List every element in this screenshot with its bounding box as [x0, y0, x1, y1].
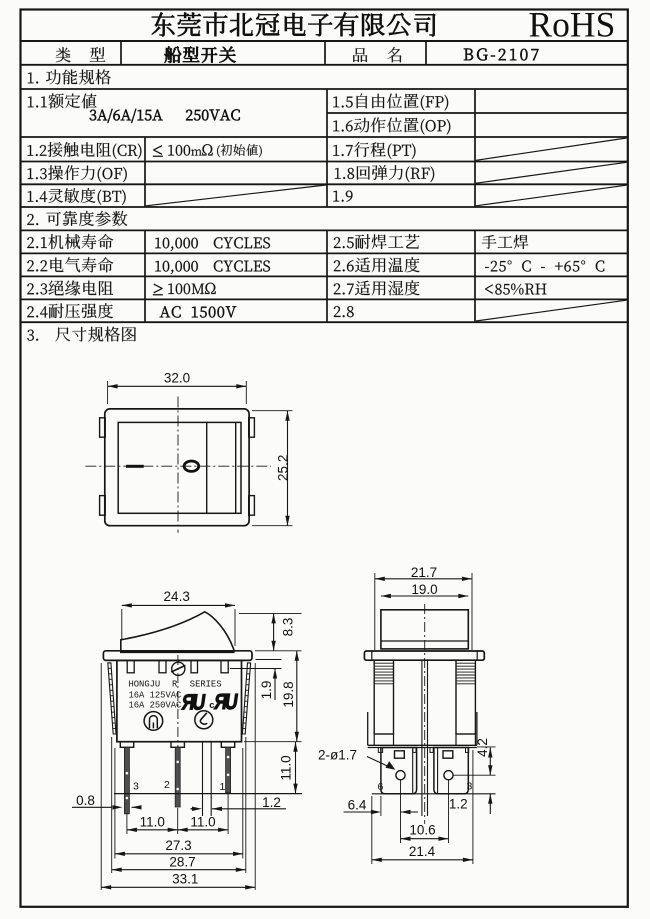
- svg-text:19.0: 19.0: [411, 582, 437, 597]
- svg-text:SERIES: SERIES: [190, 679, 222, 689]
- svg-text:3: 3: [467, 781, 473, 793]
- svg-text:11.0: 11.0: [140, 814, 165, 829]
- svg-text:1: 1: [220, 781, 226, 793]
- svg-text:10.6: 10.6: [409, 823, 435, 838]
- svg-text:11.0: 11.0: [279, 755, 294, 780]
- svg-text:1.2: 1.2: [262, 795, 281, 810]
- svg-text:0.8: 0.8: [76, 793, 95, 808]
- svg-text:R: R: [172, 679, 178, 689]
- svg-text:21.7: 21.7: [411, 565, 437, 580]
- svg-text:2: 2: [164, 779, 170, 791]
- svg-text:19.8: 19.8: [281, 681, 296, 707]
- svg-text:21.4: 21.4: [409, 844, 436, 859]
- svg-text:4.2: 4.2: [475, 738, 490, 757]
- svg-text:8.3: 8.3: [280, 618, 295, 637]
- svg-text:1.2: 1.2: [449, 797, 468, 812]
- svg-text:6: 6: [378, 781, 384, 793]
- svg-text:RoHS: RoHS: [529, 5, 616, 45]
- svg-text:33.1: 33.1: [172, 872, 198, 887]
- svg-text:3: 3: [133, 781, 139, 793]
- svg-text:24.3: 24.3: [164, 589, 190, 604]
- svg-text:2-ø1.7: 2-ø1.7: [318, 748, 357, 763]
- svg-text:32.0: 32.0: [164, 371, 190, 386]
- svg-text:16A 125VAC: 16A 125VAC: [129, 691, 182, 701]
- svg-text:27.3: 27.3: [165, 838, 191, 853]
- svg-text:16A 250VAC: 16A 250VAC: [129, 701, 182, 711]
- svg-text:HONGJU: HONGJU: [129, 679, 161, 689]
- svg-text:6.4: 6.4: [348, 797, 367, 812]
- svg-text:28.7: 28.7: [169, 854, 195, 869]
- svg-text:11.0: 11.0: [190, 814, 215, 829]
- svg-text:1.9: 1.9: [259, 681, 274, 700]
- svg-text:25.2: 25.2: [276, 455, 291, 481]
